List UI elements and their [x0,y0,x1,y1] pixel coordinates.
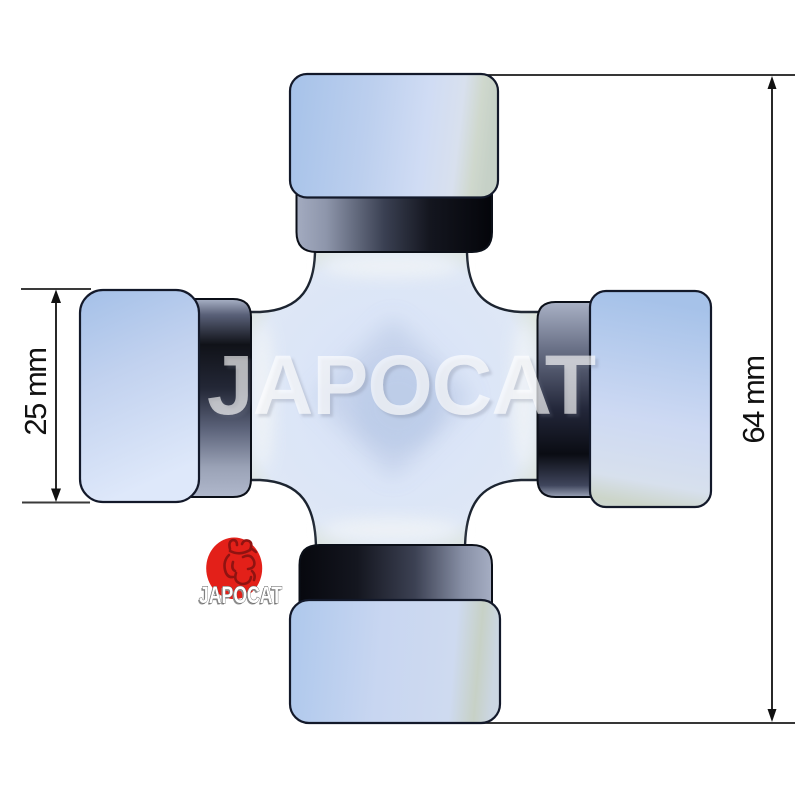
svg-text:25 mm: 25 mm [18,348,53,435]
svg-text:JAPOCAT: JAPOCAT [207,338,596,432]
svg-text:JAPOCAT: JAPOCAT [199,582,282,609]
svg-text:64 mm: 64 mm [736,356,771,443]
